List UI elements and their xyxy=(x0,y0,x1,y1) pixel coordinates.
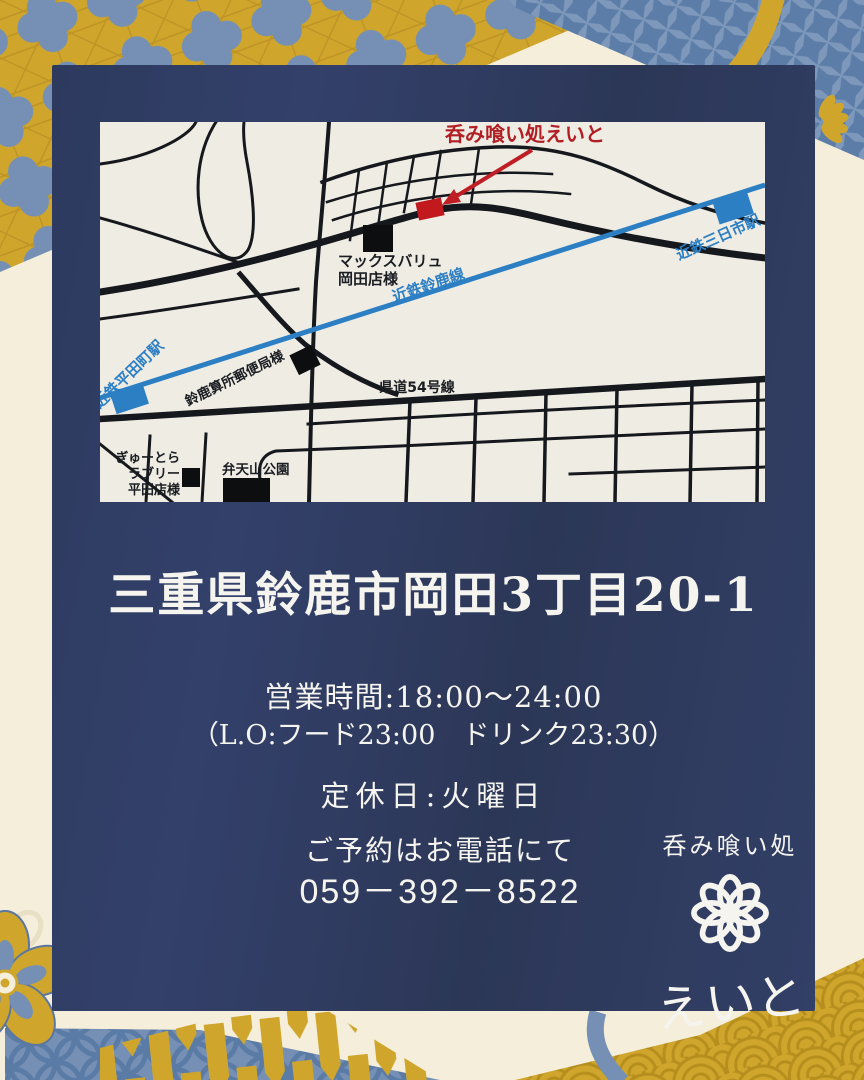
logo-name: えいと xyxy=(637,954,824,1044)
flyer: マックスバリュ 岡田店様 鈴鹿算所郵便局様 県道54号線 ぎゅーとら ラブリー … xyxy=(0,0,864,1080)
reservation-note: ご予約はお電話にて xyxy=(160,829,720,869)
blue-stripe xyxy=(595,1012,622,1080)
flower-crest-icon xyxy=(686,869,774,957)
maxvalu-label-2: 岡田店様 xyxy=(338,270,399,288)
shippo-yagasuri-band xyxy=(0,1000,440,1080)
business-hours: 営業時間:18:00～24:00 xyxy=(52,674,815,716)
route54-label: 県道54号線 xyxy=(379,379,454,396)
maxvalu-box xyxy=(363,225,393,252)
shop-logo: 呑み喰い処 えいと xyxy=(640,826,820,1035)
park-box xyxy=(223,478,270,502)
logo-tagline: 呑み喰い処 xyxy=(640,826,820,861)
yagasuri-arrows xyxy=(100,1006,440,1080)
phone-number: 059－392－8522 xyxy=(160,864,720,913)
gyutora-label-2: ラブリー xyxy=(128,466,180,482)
access-map: マックスバリュ 岡田店様 鈴鹿算所郵便局様 県道54号線 ぎゅーとら ラブリー … xyxy=(100,122,765,502)
gyutora-label-1: ぎゅーとら xyxy=(115,450,180,466)
gyutora-label-3: 平田店様 xyxy=(128,482,181,498)
gyutora-box xyxy=(182,468,200,487)
shop-callout-label: 呑み喰い処えいと xyxy=(444,122,605,146)
closed-day: 定休日:火曜日 xyxy=(52,773,815,815)
maxvalu-label-1: マックスバリュ xyxy=(338,252,443,270)
address: 三重県鈴鹿市岡田3丁目20-1 xyxy=(52,556,815,625)
park-label: 弁天山公園 xyxy=(222,461,290,478)
gold-petal-accent xyxy=(812,92,864,156)
last-order: （L.O:フード23:00 ドリンク23:30） xyxy=(52,713,815,752)
